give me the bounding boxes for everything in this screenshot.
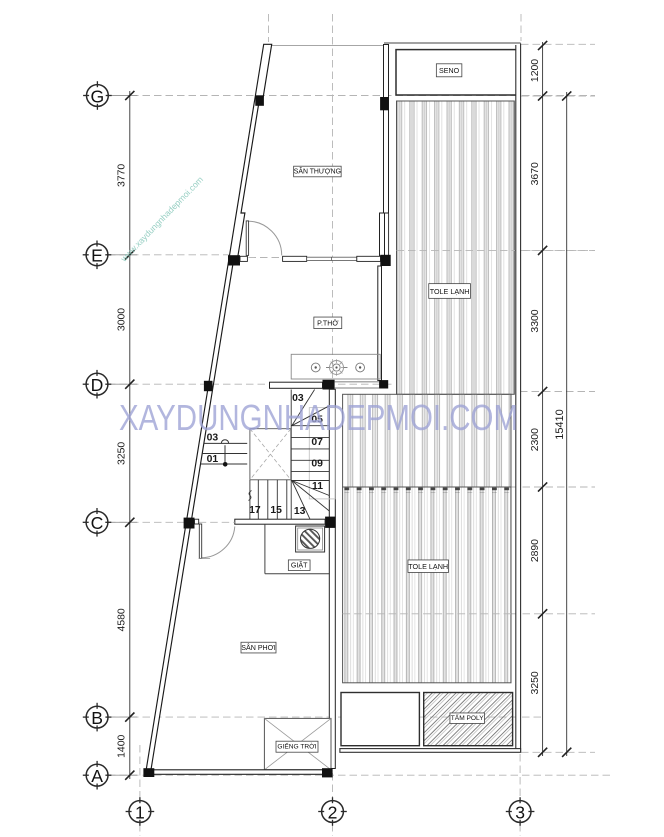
svg-text:17: 17	[249, 505, 261, 516]
svg-text:TOLE LẠNH: TOLE LẠNH	[430, 287, 470, 296]
svg-text:09: 09	[311, 458, 323, 469]
svg-text:3: 3	[515, 802, 525, 822]
svg-text:1: 1	[135, 802, 145, 822]
svg-text:2300: 2300	[530, 428, 541, 451]
svg-text:SÂN PHƠI: SÂN PHƠI	[241, 643, 275, 652]
svg-text:XAYDUNGNHADEPMOI.COM: XAYDUNGNHADEPMOI.COM	[119, 397, 518, 438]
svg-text:A: A	[91, 766, 103, 786]
svg-text:G: G	[91, 86, 105, 106]
svg-text:2890: 2890	[530, 539, 541, 562]
svg-text:4580: 4580	[116, 608, 127, 631]
svg-text:3000: 3000	[116, 308, 127, 331]
svg-text:11: 11	[312, 481, 323, 492]
svg-text:07: 07	[311, 437, 323, 448]
svg-text:3770: 3770	[116, 164, 127, 187]
svg-text:C: C	[91, 513, 104, 533]
svg-text:E: E	[91, 246, 103, 266]
svg-text:1400: 1400	[116, 735, 127, 758]
svg-text:SÂN THƯỢNG: SÂN THƯỢNG	[294, 167, 341, 176]
svg-text:2: 2	[328, 802, 338, 822]
svg-text:3250: 3250	[116, 442, 127, 465]
svg-text:3670: 3670	[530, 162, 541, 185]
svg-text:13: 13	[294, 506, 306, 517]
svg-text:TOLE LẠNH: TOLE LẠNH	[408, 562, 448, 571]
svg-text:01: 01	[207, 454, 219, 465]
svg-text:15410: 15410	[554, 409, 566, 440]
svg-text:P.THỜ: P.THỜ	[317, 318, 338, 327]
svg-text:B: B	[91, 708, 103, 728]
svg-text:3250: 3250	[530, 671, 541, 694]
svg-text:15: 15	[270, 505, 282, 516]
svg-text:GIẶT: GIẶT	[291, 561, 308, 570]
svg-text:1200: 1200	[530, 59, 541, 82]
svg-text:D: D	[91, 375, 104, 395]
svg-text:3300: 3300	[530, 309, 541, 332]
svg-text:SENO: SENO	[439, 67, 460, 75]
